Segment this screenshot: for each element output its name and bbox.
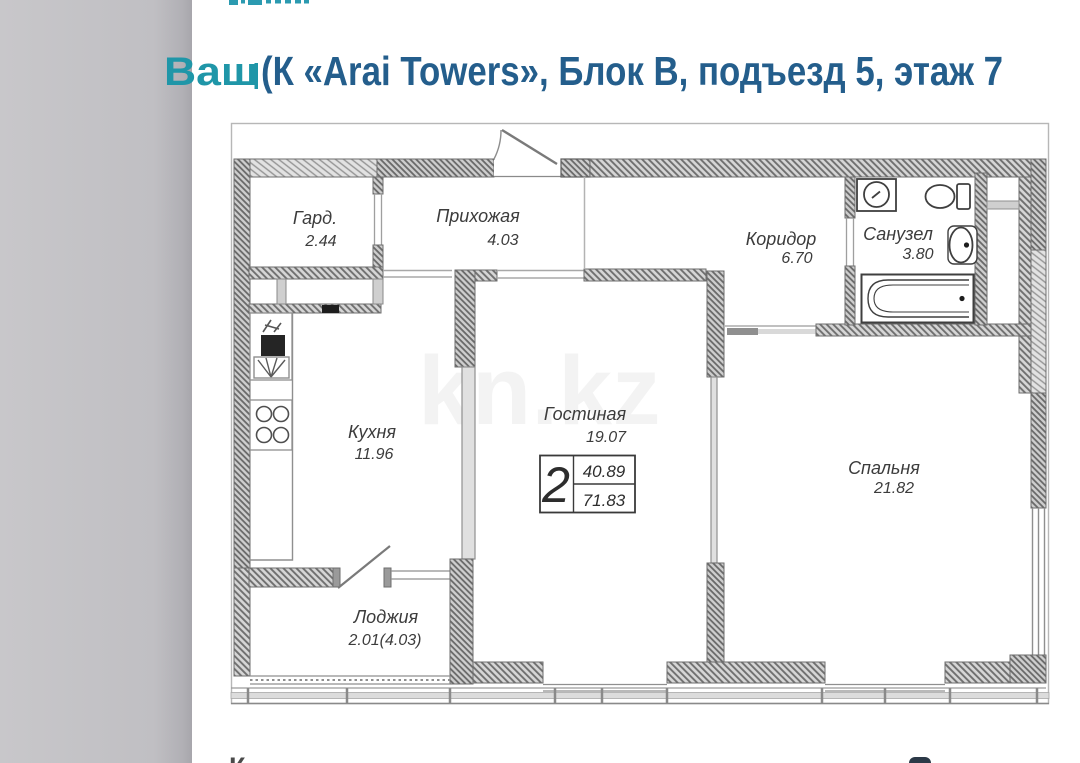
svg-text:Кухня: Кухня bbox=[348, 422, 396, 442]
svg-text:19.07: 19.07 bbox=[586, 429, 627, 446]
svg-text:2: 2 bbox=[541, 457, 570, 513]
svg-text:21.82: 21.82 bbox=[873, 480, 914, 497]
svg-text:Спальня: Спальня bbox=[848, 458, 920, 478]
svg-text:Гард.: Гард. bbox=[293, 208, 337, 228]
svg-text:11.96: 11.96 bbox=[355, 446, 394, 463]
svg-text:Санузел: Санузел bbox=[863, 224, 933, 244]
svg-text:40.89: 40.89 bbox=[583, 462, 626, 481]
svg-text:(К «Arai Towers», Блок B, подъ: (К «Arai Towers», Блок B, подъезд 5, эта… bbox=[261, 48, 1003, 94]
svg-text:2.01(4.03): 2.01(4.03) bbox=[348, 632, 422, 649]
svg-text:К: К bbox=[229, 752, 246, 763]
svg-text:2.44: 2.44 bbox=[304, 233, 336, 250]
svg-text:6.70: 6.70 bbox=[781, 250, 812, 267]
svg-text:3.80: 3.80 bbox=[902, 246, 933, 263]
svg-text:Коридор: Коридор bbox=[746, 229, 817, 249]
svg-text:71.83: 71.83 bbox=[583, 491, 626, 510]
svg-text:Гостиная: Гостиная bbox=[544, 404, 627, 424]
svg-text:4.03: 4.03 bbox=[487, 232, 518, 249]
svg-text:Ваш: Ваш bbox=[164, 50, 258, 94]
svg-text:Лоджия: Лоджия bbox=[353, 607, 419, 627]
svg-text:Прихожая: Прихожая bbox=[436, 206, 520, 226]
